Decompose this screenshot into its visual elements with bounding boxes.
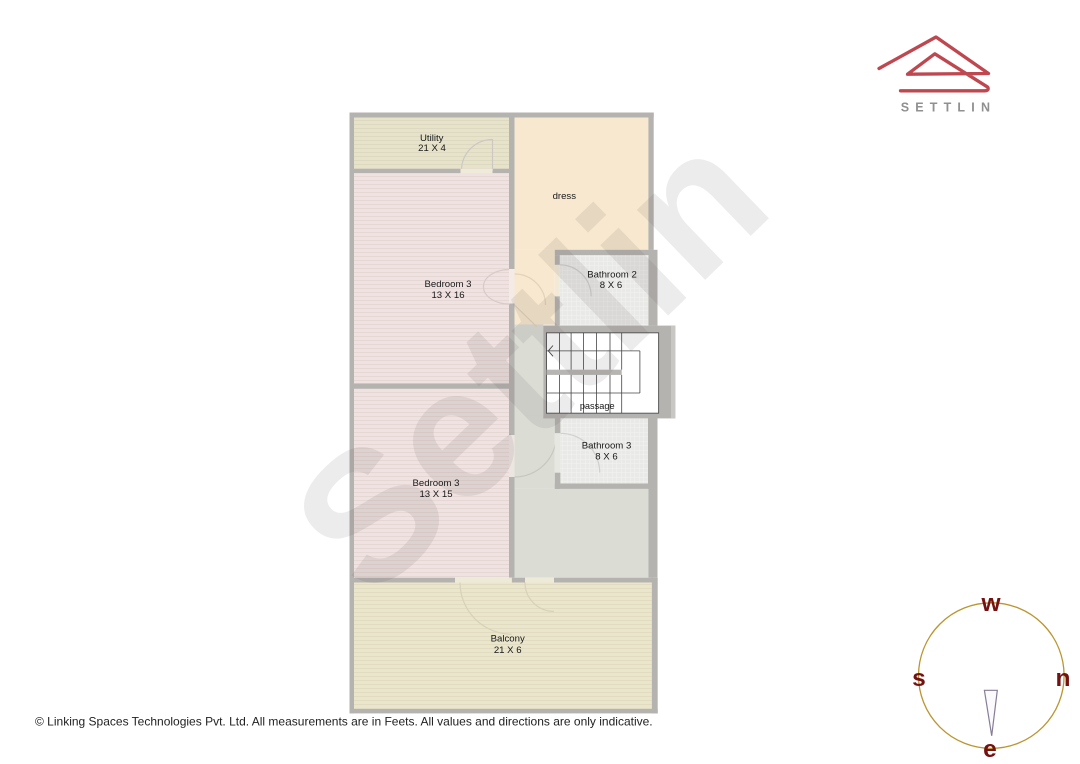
svg-text:s: s	[912, 665, 926, 692]
svg-text:Utility: Utility	[420, 133, 444, 144]
svg-text:dress: dress	[553, 191, 577, 202]
svg-text:8 X 6: 8 X 6	[600, 280, 622, 291]
svg-text:© Linking Spaces Technologies: © Linking Spaces Technologies Pvt. Ltd. …	[35, 715, 653, 729]
svg-text:13 X 16: 13 X 16	[431, 290, 464, 301]
svg-text:21 X 6: 21 X 6	[494, 645, 522, 656]
svg-text:13 X 15: 13 X 15	[419, 489, 452, 500]
svg-text:w: w	[980, 590, 1001, 617]
svg-text:Balcony: Balcony	[491, 634, 525, 645]
svg-text:Bathroom 3: Bathroom 3	[582, 441, 632, 452]
svg-text:Bedroom 3: Bedroom 3	[413, 478, 460, 489]
svg-text:Bedroom 3: Bedroom 3	[425, 279, 472, 290]
svg-text:21 X 4: 21 X 4	[418, 143, 446, 154]
svg-text:Bathroom 2: Bathroom 2	[587, 270, 637, 281]
svg-text:8 X 6: 8 X 6	[595, 451, 617, 462]
svg-text:n: n	[1056, 665, 1071, 692]
svg-text:SETTLIN: SETTLIN	[901, 101, 996, 115]
svg-text:passage: passage	[580, 401, 615, 411]
svg-text:e: e	[983, 736, 997, 763]
